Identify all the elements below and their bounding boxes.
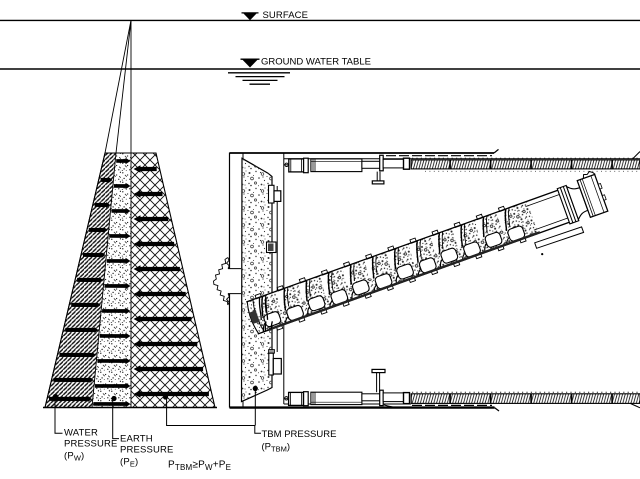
svg-text:EARTH: EARTH [120, 434, 153, 445]
svg-text:SURFACE: SURFACE [263, 10, 309, 21]
svg-text:GROUND WATER TABLE: GROUND WATER TABLE [261, 56, 371, 67]
svg-text:PRESSURE: PRESSURE [64, 439, 117, 450]
svg-text:(PTBM): (PTBM) [262, 442, 291, 454]
svg-text:PRESSURE: PRESSURE [120, 445, 173, 456]
svg-text:(PE): (PE) [120, 457, 138, 469]
svg-text:TBM PRESSURE: TBM PRESSURE [262, 429, 337, 440]
svg-text:(PW): (PW) [64, 451, 84, 463]
svg-text:WATER: WATER [64, 428, 98, 439]
svg-text:PTBM≥PW+PE: PTBM≥PW+PE [168, 460, 231, 473]
